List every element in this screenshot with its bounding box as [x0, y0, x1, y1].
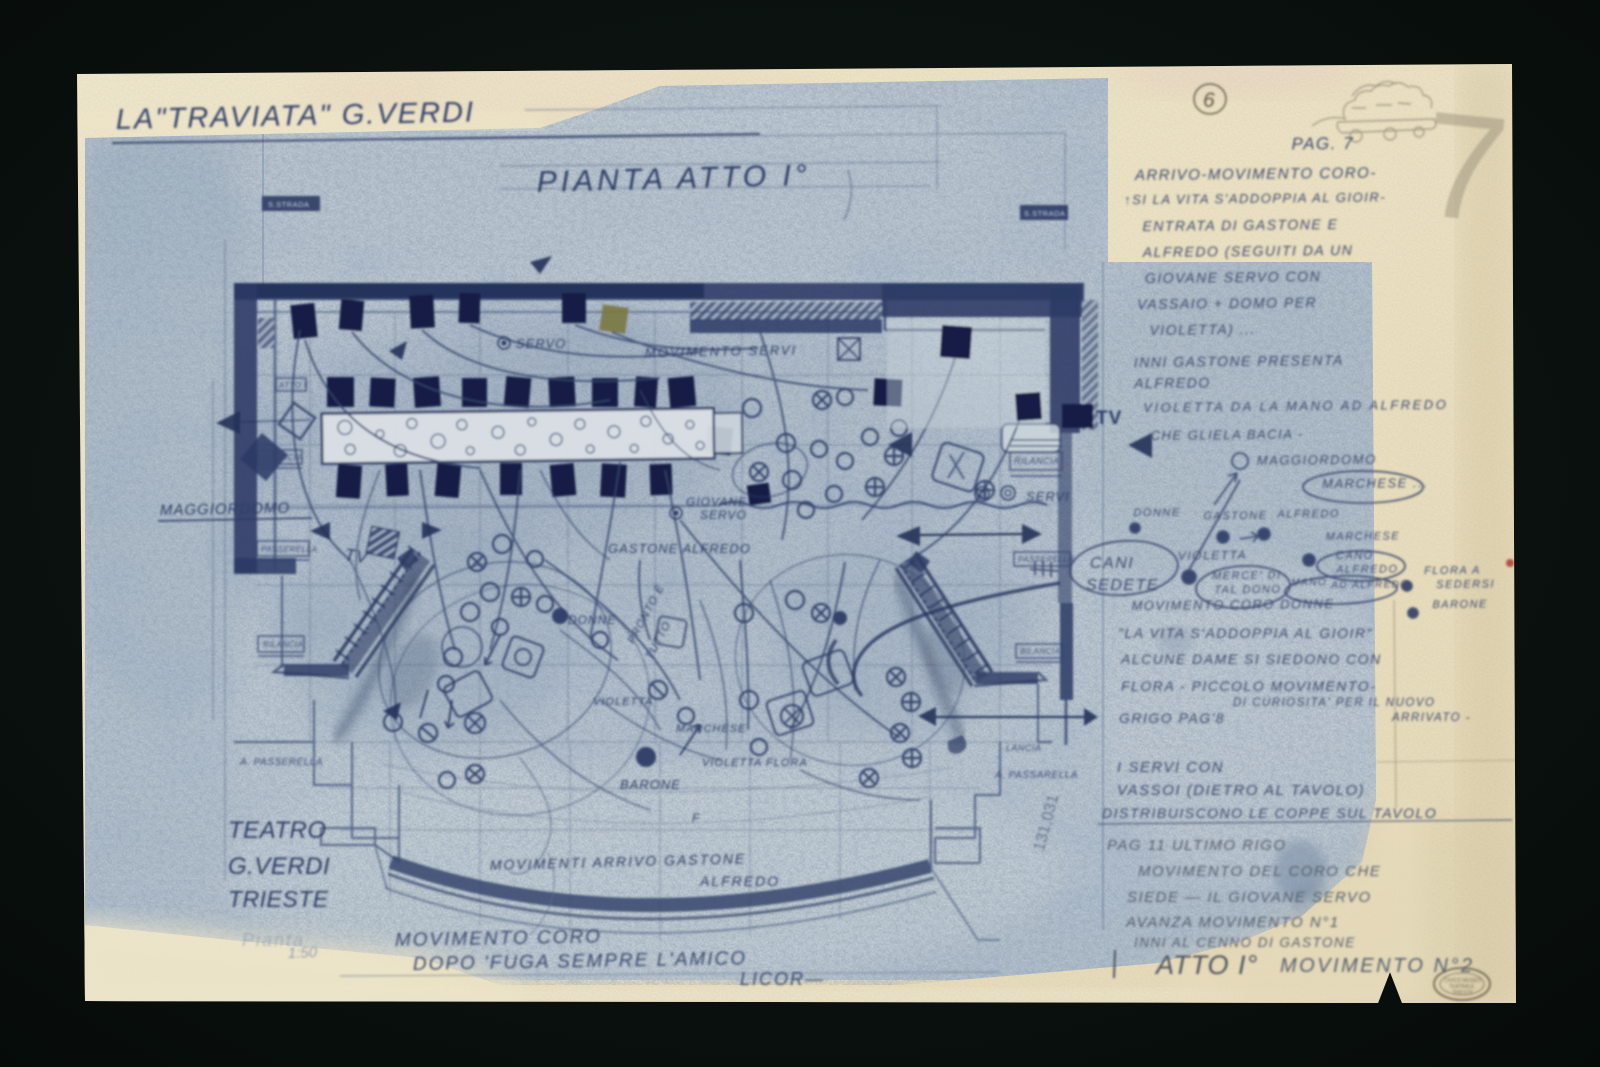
svg-text:TV: TV [1096, 408, 1122, 429]
svg-text:MOVIMENTO CORO DONNE: MOVIMENTO CORO DONNE [1131, 596, 1334, 613]
svg-text:G.VERDI: G.VERDI [228, 853, 330, 880]
svg-text:1:50: 1:50 [288, 944, 318, 962]
svg-text:PAG. 7: PAG. 7 [1291, 134, 1354, 154]
svg-text:A. PASSARELLA: A. PASSARELLA [994, 770, 1078, 781]
svg-text:TRIESTE: TRIESTE [1452, 990, 1474, 996]
svg-text:CANI: CANI [1090, 555, 1134, 572]
svg-text:BILANCIA: BILANCIA [262, 453, 302, 462]
svg-text:MOVIMENTO N°2: MOVIMENTO N°2 [1280, 955, 1475, 977]
svg-text:INNI GASTONE PRESENTA: INNI GASTONE PRESENTA [1134, 352, 1344, 370]
svg-text:MOVIMENTO SERVI: MOVIMENTO SERVI [645, 342, 798, 360]
svg-text:GASTONE: GASTONE [1203, 510, 1267, 523]
svg-text:SERVI: SERVI [1026, 489, 1070, 504]
svg-text:BARONE: BARONE [620, 777, 681, 792]
svg-text:MAGGIORDOMO: MAGGIORDOMO [160, 500, 290, 519]
svg-text:GIOVANE: GIOVANE [686, 495, 747, 509]
svg-text:VIOLETTA: VIOLETTA [593, 696, 653, 708]
svg-text:FLORA - PICCOLO MOVIMENTO-: FLORA - PICCOLO MOVIMENTO- [1121, 678, 1376, 694]
svg-text:ARRIVO-MOVIMENTO CORO-: ARRIVO-MOVIMENTO CORO- [1134, 165, 1377, 185]
svg-text:AVANZA MOVIMENTO N°1: AVANZA MOVIMENTO N°1 [1125, 914, 1340, 931]
svg-text:INNI AL CENNO DI GASTONE: INNI AL CENNO DI GASTONE [1134, 935, 1356, 950]
svg-text:MARCHESE: MARCHESE [1326, 530, 1400, 543]
svg-text:PASSERELLA: PASSERELLA [261, 545, 317, 554]
svg-text:DONNE: DONNE [1133, 507, 1180, 519]
svg-text:TRIESTE: TRIESTE [228, 886, 329, 912]
svg-text:MAGGIORDOMO: MAGGIORDOMO [1257, 452, 1377, 468]
svg-text:ALFREDO: ALFREDO [699, 873, 780, 889]
svg-text:VIOLETTA DA LA MANO AD ALFREDO: VIOLETTA DA LA MANO AD ALFREDO [1143, 397, 1448, 415]
svg-text:DI CURIOSITA' PER IL NUOVO: DI CURIOSITA' PER IL NUOVO [1233, 697, 1435, 709]
svg-text:VASSAIO + DOMO PER: VASSAIO + DOMO PER [1137, 294, 1317, 312]
svg-text:RILANCIA: RILANCIA [1014, 456, 1060, 466]
svg-text:BILANCIA: BILANCIA [1020, 647, 1060, 656]
svg-text:SERVO: SERVO [516, 336, 566, 351]
svg-text:6: 6 [1203, 89, 1215, 112]
svg-text:TAL DONO: TAL DONO [1214, 584, 1281, 597]
svg-text:7: 7 [1415, 79, 1516, 255]
svg-text:ALFREDO: ALFREDO [1276, 508, 1340, 521]
svg-text:SIEDE — IL GIOVANE SERVO: SIEDE — IL GIOVANE SERVO [1127, 889, 1372, 906]
svg-text:SERVO: SERVO [700, 508, 747, 522]
svg-text:MARCHESE ...: MARCHESE ... [1322, 475, 1428, 491]
svg-text:BILANCIA: BILANCIA [263, 640, 303, 649]
svg-text:LICOR—: LICOR— [740, 969, 825, 989]
svg-text:MOVIMENTO CORO: MOVIMENTO CORO [395, 926, 602, 951]
svg-text:MERCE' DI: MERCE' DI [1212, 570, 1282, 583]
svg-text:S.STRADA: S.STRADA [1024, 209, 1066, 218]
svg-text:A. PASSERELLA: A. PASSERELLA [239, 757, 323, 768]
svg-text:DONNE: DONNE [568, 613, 616, 627]
svg-text:TEATRO: TEATRO [228, 817, 327, 844]
svg-text:F: F [692, 811, 700, 825]
svg-text:VIOLETTA: VIOLETTA [1178, 548, 1247, 563]
svg-text:ATTO I°: ATTO I° [1154, 950, 1258, 980]
svg-text:ALCUNE DAME SI SIEDONO CON: ALCUNE DAME SI SIEDONO CON [1120, 651, 1382, 667]
svg-text:ALFREDO: ALFREDO [1133, 374, 1211, 391]
svg-text:BARONE: BARONE [1432, 598, 1488, 611]
svg-text:VASSOI (DIETRO AL TAVOLO): VASSOI (DIETRO AL TAVOLO) [1117, 782, 1365, 799]
svg-text:ENTRATA DI GASTONE E: ENTRATA DI GASTONE E [1142, 216, 1338, 234]
svg-text:GASTONE ALFREDO: GASTONE ALFREDO [608, 541, 751, 556]
svg-text:VIOLETTA) ...: VIOLETTA) ... [1149, 321, 1256, 338]
svg-text:MOVIMENTO DEL CORO CHE: MOVIMENTO DEL CORO CHE [1138, 863, 1381, 880]
svg-text:TV: TV [343, 545, 370, 567]
svg-text:CHE GLIELA BACIA -: CHE GLIELA BACIA - [1151, 426, 1304, 443]
svg-text:GIOVANE SERVO CON: GIOVANE SERVO CON [1145, 268, 1321, 286]
svg-text:PAG 11 ULTIMO RIGO: PAG 11 ULTIMO RIGO [1107, 837, 1287, 854]
svg-text:SEDERSI: SEDERSI [1436, 578, 1495, 591]
svg-text:FLORA A: FLORA A [1424, 565, 1481, 578]
svg-text:GRIGO PAG'8: GRIGO PAG'8 [1119, 710, 1225, 726]
svg-text:VIOLETTA FLORA: VIOLETTA FLORA [702, 757, 808, 769]
svg-text:MANO: MANO [1291, 577, 1327, 588]
svg-text:CANO: CANO [1336, 550, 1374, 562]
svg-text:AD ALFREDO: AD ALFREDO [1330, 579, 1410, 591]
svg-text:I SERVI CON: I SERVI CON [1117, 759, 1224, 776]
svg-text:DISTRIBUISCONO LE COPPE SUL TA: DISTRIBUISCONO LE COPPE SUL TAVOLO [1102, 805, 1437, 821]
svg-text:↑SI LA VITA S'ADDOPPIA AL GIOI: ↑SI LA VITA S'ADDOPPIA AL GIOIR- [1124, 189, 1386, 207]
svg-text:ALFREDO (SEGUITI DA UN: ALFREDO (SEGUITI DA UN [1142, 242, 1354, 260]
svg-text:"LA VITA S'ADDOPPIA AL GIOIR": "LA VITA S'ADDOPPIA AL GIOIR" [1118, 625, 1373, 641]
svg-text:S.STRADA: S.STRADA [268, 200, 310, 209]
svg-text:ATTO I: ATTO I [278, 381, 307, 390]
svg-text:ALFREDO: ALFREDO [1335, 563, 1399, 576]
svg-text:SEDETE: SEDETE [1086, 577, 1159, 594]
svg-text:PASSERELLA: PASSERELLA [1018, 555, 1074, 564]
svg-text:ARRIVATO -: ARRIVATO - [1391, 712, 1471, 724]
svg-text:MARCHESE: MARCHESE [676, 723, 746, 735]
svg-text:LANCIA: LANCIA [1006, 743, 1042, 753]
